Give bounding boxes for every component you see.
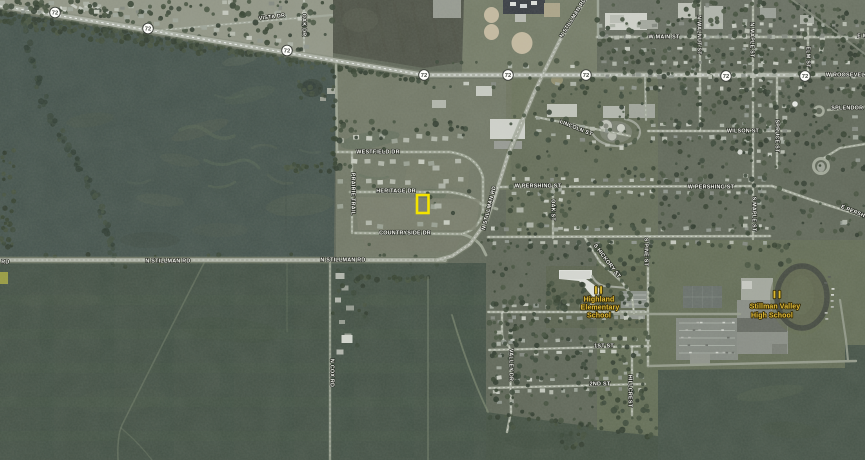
svg-text:PRAIRIE TRAIL: PRAIRIE TRAIL [350,173,356,216]
svg-text:OAK ST: OAK ST [550,199,556,221]
svg-text:N STILLMAN RD: N STILLMAN RD [320,257,365,263]
svg-text:School: School [587,312,611,319]
svg-text:HERITAGE DR: HERITAGE DR [376,188,416,194]
svg-text:OAK DR: OAK DR [301,14,307,37]
svg-text:72: 72 [723,74,729,80]
svg-text:W ROOSEVELT RD: W ROOSEVELT RD [826,72,865,78]
svg-text:S PINE ST: S PINE ST [643,238,649,267]
svg-text:Stillman Valley: Stillman Valley [750,303,801,310]
svg-text:COUNTRYSIDE DR: COUNTRYSIDE DR [379,230,431,236]
svg-text:72: 72 [421,73,427,79]
svg-text:72: 72 [583,73,589,79]
svg-text:N COX RD: N COX RD [329,359,335,387]
svg-text:ELM ST: ELM ST [805,46,811,68]
svg-text:2ND ST: 2ND ST [590,381,611,387]
svg-text:N STILLMAN RD: N STILLMAN RD [0,259,10,265]
svg-text:72: 72 [145,26,151,32]
svg-text:72: 72 [505,73,511,79]
svg-text:Highland: Highland [584,296,615,303]
svg-text:SPRUCE ST: SPRUCE ST [774,119,780,153]
svg-text:N MAPLE ST: N MAPLE ST [749,22,755,58]
svg-text:WESTFIELD DR: WESTFIELD DR [356,149,399,155]
svg-text:72: 72 [284,48,290,54]
svg-text:72: 72 [802,74,808,80]
svg-text:High School: High School [751,312,793,319]
svg-text:W PERSHING ST: W PERSHING ST [688,184,735,190]
svg-text:Elementary: Elementary [581,304,620,311]
svg-text:N STILLMAN RD: N STILLMAN RD [145,258,190,264]
svg-text:VALLEY DR: VALLEY DR [508,349,514,381]
svg-text:1ST ST: 1ST ST [594,343,614,349]
svg-text:S MAPLE ST: S MAPLE ST [751,197,757,232]
svg-text:HILLCREST: HILLCREST [627,375,633,408]
svg-text:72: 72 [52,10,58,16]
svg-text:N WALNUT ST: N WALNUT ST [696,15,702,55]
svg-text:E MAIN ST: E MAIN ST [857,33,865,39]
svg-text:W MAIN ST: W MAIN ST [649,34,680,40]
svg-text:SPLENDOR CT: SPLENDOR CT [831,105,865,111]
svg-text:W PERSHING ST: W PERSHING ST [515,183,562,189]
svg-text:WILSON ST: WILSON ST [727,128,760,134]
